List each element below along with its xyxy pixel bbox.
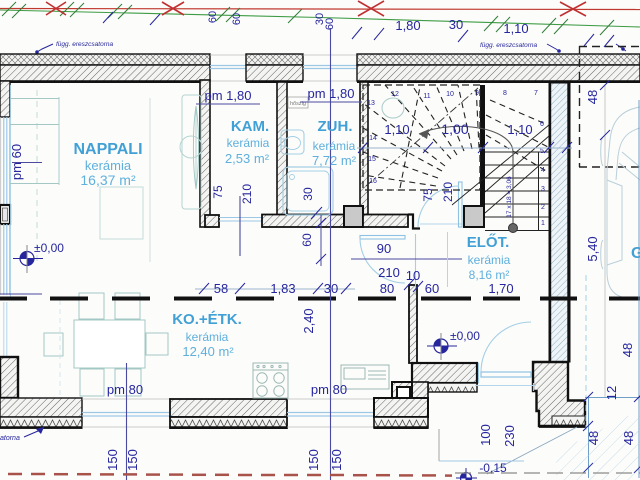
svg-text:kerámia: kerámia	[85, 158, 132, 173]
svg-text:1: 1	[541, 220, 545, 227]
svg-text:48: 48	[621, 431, 636, 445]
svg-text:függ. ereszcsatorna: függ. ereszcsatorna	[480, 42, 537, 49]
svg-text:60: 60	[425, 281, 439, 296]
svg-text:-0,15: -0,15	[479, 461, 507, 475]
svg-text:pm 1,80: pm 1,80	[308, 86, 355, 101]
svg-text:210: 210	[378, 265, 400, 280]
svg-text:kerámia: kerámia	[186, 330, 229, 344]
svg-text:függ. ereszcsatorna: függ. ereszcsatorna	[56, 41, 113, 48]
svg-text:pm 60: pm 60	[9, 144, 24, 180]
svg-text:60: 60	[231, 13, 243, 25]
svg-text:ELŐT.: ELŐT.	[467, 233, 510, 251]
svg-text:kerámia: kerámia	[227, 136, 270, 150]
svg-text:150: 150	[306, 449, 321, 471]
svg-text:KAM.: KAM.	[231, 118, 269, 135]
svg-text:48: 48	[586, 431, 601, 445]
svg-text:210: 210	[240, 184, 254, 204]
svg-text:1,10: 1,10	[507, 122, 532, 137]
svg-text:pm 80: pm 80	[107, 382, 143, 397]
svg-text:5,40: 5,40	[585, 236, 600, 261]
svg-text:8: 8	[503, 90, 507, 97]
svg-text:150: 150	[125, 449, 140, 471]
svg-text:210: 210	[441, 182, 455, 202]
svg-text:±0,00: ±0,00	[450, 329, 480, 343]
svg-text:150: 150	[329, 449, 344, 471]
svg-text:4: 4	[541, 167, 545, 174]
svg-text:1,10: 1,10	[384, 122, 409, 137]
svg-text:kerámia: kerámia	[313, 139, 356, 153]
svg-text:kerámia: kerámia	[468, 253, 511, 267]
svg-text:14: 14	[369, 135, 377, 142]
svg-text:2,53 m²: 2,53 m²	[225, 151, 270, 166]
svg-text:1,00: 1,00	[441, 121, 468, 137]
svg-text:90: 90	[377, 241, 391, 256]
svg-text:7: 7	[534, 90, 538, 97]
svg-text:2: 2	[541, 204, 545, 211]
svg-text:150: 150	[105, 449, 120, 471]
svg-text:9: 9	[475, 90, 479, 97]
svg-text:58: 58	[214, 281, 228, 296]
svg-text:1,10: 1,10	[503, 21, 528, 36]
svg-text:230: 230	[502, 425, 517, 447]
svg-text:G: G	[631, 245, 640, 262]
svg-text:10: 10	[446, 91, 454, 98]
svg-text:1,83: 1,83	[270, 281, 295, 296]
svg-text:100: 100	[478, 424, 493, 446]
svg-text:30: 30	[449, 17, 463, 32]
svg-text:80: 80	[380, 281, 394, 296]
svg-text:60: 60	[207, 11, 219, 23]
svg-text:13: 13	[367, 100, 375, 107]
svg-text:2,40: 2,40	[301, 308, 316, 333]
svg-text:12: 12	[604, 386, 619, 400]
svg-text:ZUH.: ZUH.	[318, 118, 353, 135]
svg-text:10: 10	[406, 268, 420, 283]
svg-text:pm 1,80: pm 1,80	[205, 88, 252, 103]
svg-text:12: 12	[391, 91, 399, 98]
svg-text:30: 30	[301, 187, 315, 201]
svg-text:KO.+ÉTK.: KO.+ÉTK.	[172, 311, 242, 328]
svg-text:1,70: 1,70	[488, 281, 513, 296]
svg-text:48: 48	[620, 343, 635, 357]
svg-text:75: 75	[421, 188, 435, 202]
svg-text:5: 5	[540, 148, 544, 155]
svg-text:12,40 m²: 12,40 m²	[182, 344, 234, 359]
svg-text:17 x 18 = 3,06: 17 x 18 = 3,06	[506, 176, 513, 218]
svg-text:3: 3	[541, 186, 545, 193]
svg-text:8,16 m²: 8,16 m²	[469, 268, 510, 282]
svg-text:±0,00: ±0,00	[34, 241, 64, 255]
svg-text:1,80: 1,80	[395, 18, 420, 33]
svg-text:16: 16	[369, 178, 377, 185]
svg-text:15: 15	[368, 156, 376, 163]
svg-text:48: 48	[585, 90, 600, 104]
svg-text:pm 80: pm 80	[311, 382, 347, 397]
svg-text:16,37 m²: 16,37 m²	[80, 172, 136, 188]
svg-text:11: 11	[423, 93, 430, 100]
svg-text:60: 60	[300, 233, 314, 247]
svg-text:30: 30	[324, 281, 338, 296]
svg-text:atorna: atorna	[0, 435, 20, 442]
svg-text:NAPPALI: NAPPALI	[73, 141, 142, 158]
svg-text:75: 75	[211, 185, 225, 199]
svg-text:6: 6	[540, 121, 544, 128]
svg-text:7,72 m²: 7,72 m²	[312, 153, 357, 168]
